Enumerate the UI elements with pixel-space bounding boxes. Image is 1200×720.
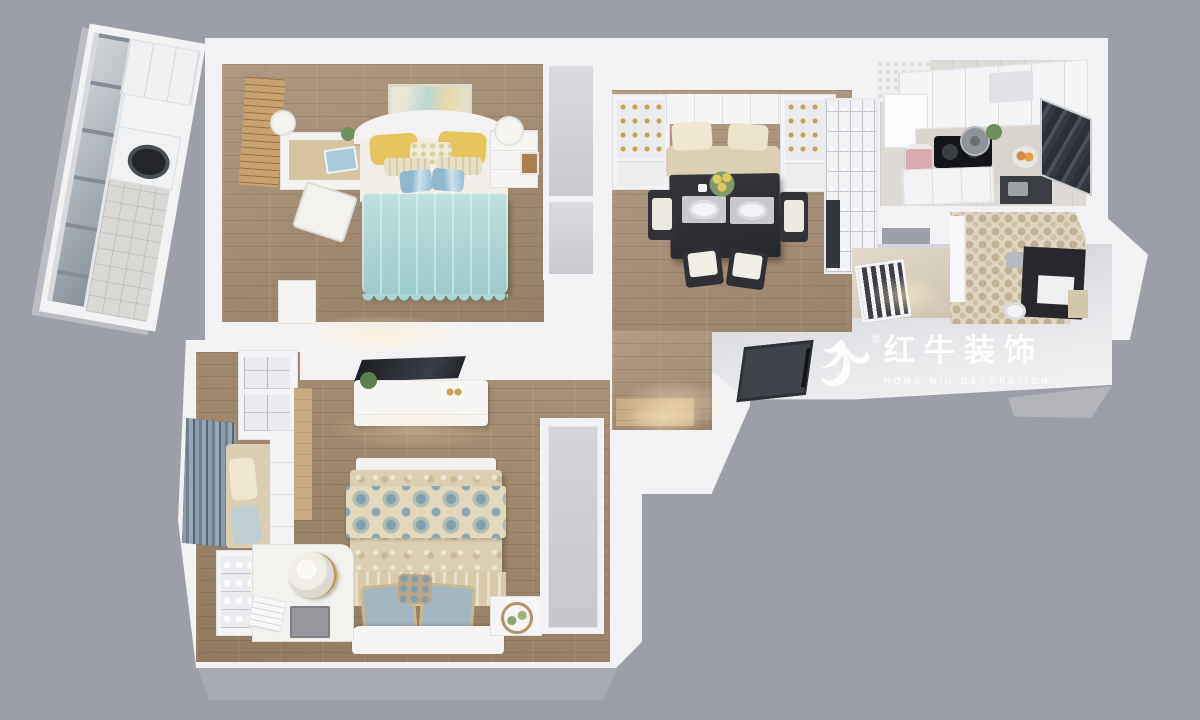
- desk-laptop: [290, 606, 330, 638]
- chair-west-cushion: [652, 198, 672, 230]
- banquette-pillow-left: [671, 121, 712, 151]
- burner-left: [942, 144, 958, 160]
- desk-jug: [288, 552, 337, 598]
- window-seat-pillow-cream: [228, 457, 258, 501]
- fruit-bowl: [1012, 146, 1038, 168]
- plate-right: [737, 201, 767, 220]
- bedroom1-dresser: [278, 280, 316, 324]
- tv-cabinet: [354, 380, 488, 426]
- window-seat-pillow-blue: [229, 504, 262, 546]
- registered-mark: ®: [870, 332, 882, 346]
- nightstand2-wreath: [501, 602, 533, 634]
- pillow-blue-right: [431, 168, 465, 193]
- kitchen-base-cabinets: [901, 166, 994, 205]
- balcony: [39, 24, 206, 332]
- bed1-blanket-scallop: [362, 294, 508, 302]
- tv-cabinet-plant: [360, 372, 377, 389]
- kitchen-plant: [986, 124, 1002, 140]
- watermark-title-cn: 红牛装饰: [884, 336, 1044, 367]
- kitchen-open-shelf: [989, 70, 1033, 103]
- cabinet-glass-left-base: [617, 161, 665, 186]
- floorplan-render: ® 红牛装饰 HONG NIU DECORATION: [0, 0, 1200, 720]
- wardrobe1-low-panel: [549, 202, 593, 274]
- bedroom2-cabinet-glass-bottom: [244, 395, 290, 431]
- flower-centerpiece: [706, 168, 738, 200]
- washing-machine: [109, 126, 181, 190]
- chair-south-right-cushion: [732, 252, 763, 280]
- chair-east-cushion: [784, 200, 804, 232]
- desk-lamp: [272, 112, 294, 134]
- chair-south-left: [682, 246, 724, 288]
- wardrobe1: [543, 58, 599, 280]
- nightstand2: [490, 596, 542, 636]
- desk-magazine: [247, 595, 287, 633]
- washing-machine-door: [125, 141, 172, 182]
- cabinet-glass-left-doors: [617, 100, 665, 158]
- bathroom-half-wall: [1068, 290, 1088, 318]
- cooking-pot: [962, 128, 988, 154]
- entry-door: [736, 340, 813, 402]
- tv-cabinet-decor: [446, 388, 462, 396]
- bedroom2-cabinet-glass-top: [244, 357, 290, 389]
- plate-left: [689, 200, 719, 219]
- entry-floor: [616, 398, 694, 426]
- pillow-blue-left: [399, 168, 433, 193]
- wardrobe2-panel: [548, 426, 598, 628]
- desk-book: [323, 146, 358, 174]
- bathroom-door: [950, 216, 966, 302]
- balcony-cabinet: [120, 39, 201, 107]
- banquette-pillow-right: [727, 123, 769, 152]
- bedroom2-floor-strip: [294, 388, 312, 520]
- toilet: [1004, 302, 1026, 320]
- photo-frame: [520, 152, 539, 175]
- kitchen-sink-counter: [1000, 176, 1052, 204]
- wardrobe1-top-panel: [549, 66, 593, 196]
- bed2-headboard: [352, 626, 504, 654]
- nightstand1-lamp: [496, 118, 522, 144]
- bed2-damask-runner: [346, 486, 506, 538]
- dining-cup: [698, 184, 707, 192]
- china-cabinet-glass: [221, 556, 251, 628]
- wall-side-bottom: [196, 664, 620, 704]
- desk-plant: [341, 127, 355, 141]
- cabinet-glass-left: [612, 94, 670, 190]
- banquette-back: [666, 94, 780, 124]
- kitchen-sink: [1008, 182, 1028, 196]
- chair-west: [648, 190, 676, 240]
- bed1-blanket: [362, 194, 508, 296]
- watermark: ® 红牛装饰 HONG NIU DECORATION: [812, 326, 1062, 392]
- bedroom2-overhead-cabinets: [238, 350, 298, 440]
- bed2-pillow-damask: [397, 573, 432, 604]
- watermark-subtitle-en: HONG NIU DECORATION: [884, 377, 1051, 387]
- wardrobe2: [540, 418, 604, 634]
- chair-east: [780, 192, 808, 242]
- hallway-railing: [854, 259, 912, 323]
- display-shelf-dark: [826, 200, 840, 268]
- chair-south-right: [726, 248, 769, 291]
- bull-swoosh-icon: [818, 338, 874, 388]
- chair-south-left-cushion: [687, 250, 718, 277]
